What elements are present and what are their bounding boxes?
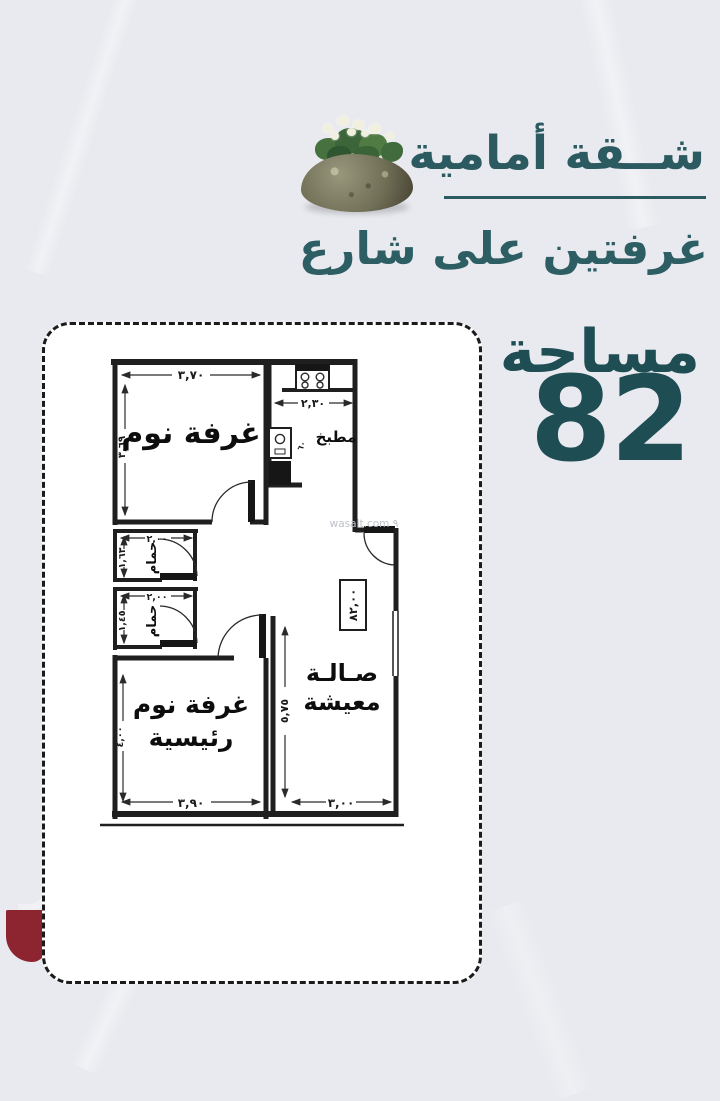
kitchen-counter-note: ٦٠ [296, 440, 308, 453]
dim-bath2-width: ٢,٠٠ [146, 592, 167, 603]
flower [347, 128, 356, 136]
bath1-label: حمام [145, 542, 160, 575]
title-underline [444, 196, 706, 199]
master-bedroom-label-1: غرفة نوم [133, 690, 249, 720]
dim-master-height: ٤,٠٠ [115, 726, 126, 747]
living-room-label-1: صـالـة [306, 659, 378, 687]
bath2-label: حمام [145, 605, 160, 638]
marble-vein [24, 0, 141, 277]
floor-plan-drawing: ٣,٧٠ ٣,٦٩ غرفة نوم ٢,٣٠ مطبخ ٦٠ ٢,٠٠ ١,٦… [45, 325, 479, 981]
dim-living-height: ٥,٧٥ [278, 699, 291, 724]
door-swing-arc [212, 482, 251, 522]
flower [337, 116, 349, 126]
flower [323, 124, 333, 133]
flower [361, 130, 369, 137]
real-estate-poster: { "header": { "title": "شــقة أمامية", "… [0, 0, 720, 1041]
door-leaf [259, 614, 266, 658]
plant-rock-photo [297, 112, 425, 220]
living-room-label-2: معيشة [303, 688, 380, 716]
dim-bath1-height: ١,٦٣ [117, 547, 128, 568]
stove-icon-panel [296, 364, 329, 371]
door-leaf [160, 640, 197, 647]
floor-plan-card: ٣,٧٠ ٣,٦٩ غرفة نوم ٢,٣٠ مطبخ ٦٠ ٢,٠٠ ١,٦… [42, 322, 482, 984]
door-swing-arc [160, 606, 197, 643]
flower [369, 124, 381, 134]
door-swing-arc [218, 615, 262, 658]
rock [301, 154, 413, 212]
door-leaf [248, 480, 255, 522]
wasalt-watermark: wasalt.com ٩ [330, 518, 399, 530]
bedroom1-label: غرفة نوم [121, 416, 261, 451]
dim-bath2-height: ١,٤٥ [117, 610, 128, 631]
master-bedroom-label-2: رئيسية [149, 723, 234, 752]
flower [331, 132, 339, 140]
area-value: 82 [530, 360, 690, 478]
marble-vein [487, 899, 593, 1101]
dim-bedroom1-width: ٣,٧٠ [178, 368, 205, 382]
flower [385, 132, 394, 140]
maroon-corner-shape [6, 910, 46, 962]
dim-master-width: ٣,٩٠ [178, 796, 205, 810]
dim-living-width: ٣,٠٠ [328, 796, 355, 810]
kitchen-cabinet [269, 461, 291, 485]
door-leaf [160, 573, 197, 580]
kitchen-label: مطبخ [316, 428, 357, 446]
page-title: شــقة أمامية [408, 130, 705, 177]
page-subtitle: غرفتين على شارع [299, 226, 708, 271]
entrance-door-arc [364, 533, 396, 565]
dim-kitchen-width: ٢,٣٠ [301, 397, 325, 410]
total-area-box-value: ٨٢,٠٠ [346, 589, 360, 621]
